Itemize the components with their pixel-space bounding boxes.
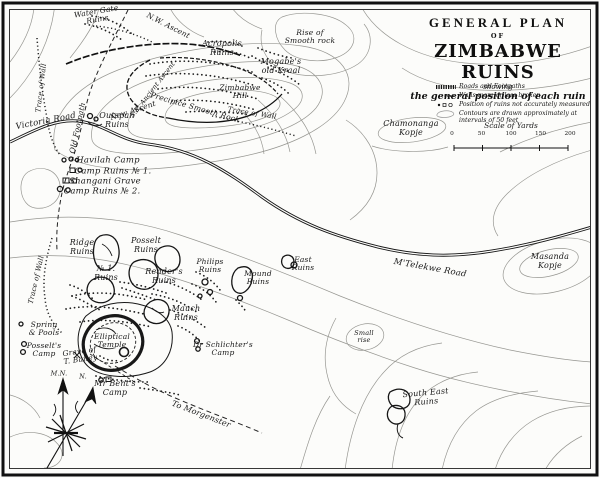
map-title-line2: OF	[398, 32, 598, 40]
ruin-symbol-icon	[436, 101, 456, 109]
scale-tick-200: 200	[564, 131, 576, 137]
footpaths-and-wall-traces	[37, 10, 296, 433]
scale-tick-150: 150	[535, 131, 547, 137]
scale-tick-0: 0	[446, 131, 458, 137]
contour-symbol-icon	[436, 110, 456, 118]
compass-rose	[46, 378, 96, 468]
map-page: Water Gate RuinsN.W. AscentTrace of Wall…	[0, 0, 600, 478]
scale-bar-line	[452, 144, 570, 152]
legend-label-ruins: Position of ruins not accurately measure…	[459, 101, 590, 108]
scale-tick-50: 50	[476, 131, 488, 137]
legend-label-roads: Roads and Footpaths	[459, 83, 525, 90]
ruin-outlines	[19, 114, 410, 439]
map-title-line1: GENERAL PLAN	[398, 15, 598, 31]
legend: Roads and Footpaths Walls more or less b…	[436, 83, 590, 126]
scale-tick-100: 100	[505, 131, 517, 137]
scale-title: Scale of Yards	[452, 121, 570, 130]
map-title-line3: ZIMBABWE RUINS	[398, 41, 598, 83]
elliptical-temple-outline	[76, 303, 172, 378]
wall-symbol-icon	[436, 92, 456, 100]
scale-bar: Scale of Yards 0 50 100 150 200	[452, 121, 570, 156]
legend-row-walls: Walls more or less broken	[436, 92, 590, 100]
ruin-stipple	[66, 16, 300, 395]
road-symbol-icon	[436, 83, 456, 91]
legend-label-walls: Walls more or less broken	[459, 92, 540, 99]
scale-numbers: 0 50 100 150 200	[446, 131, 576, 137]
acropolis-walls	[66, 44, 282, 123]
legend-row-roads: Roads and Footpaths	[436, 83, 590, 91]
legend-row-ruins: Position of ruins not accurately measure…	[436, 101, 590, 109]
